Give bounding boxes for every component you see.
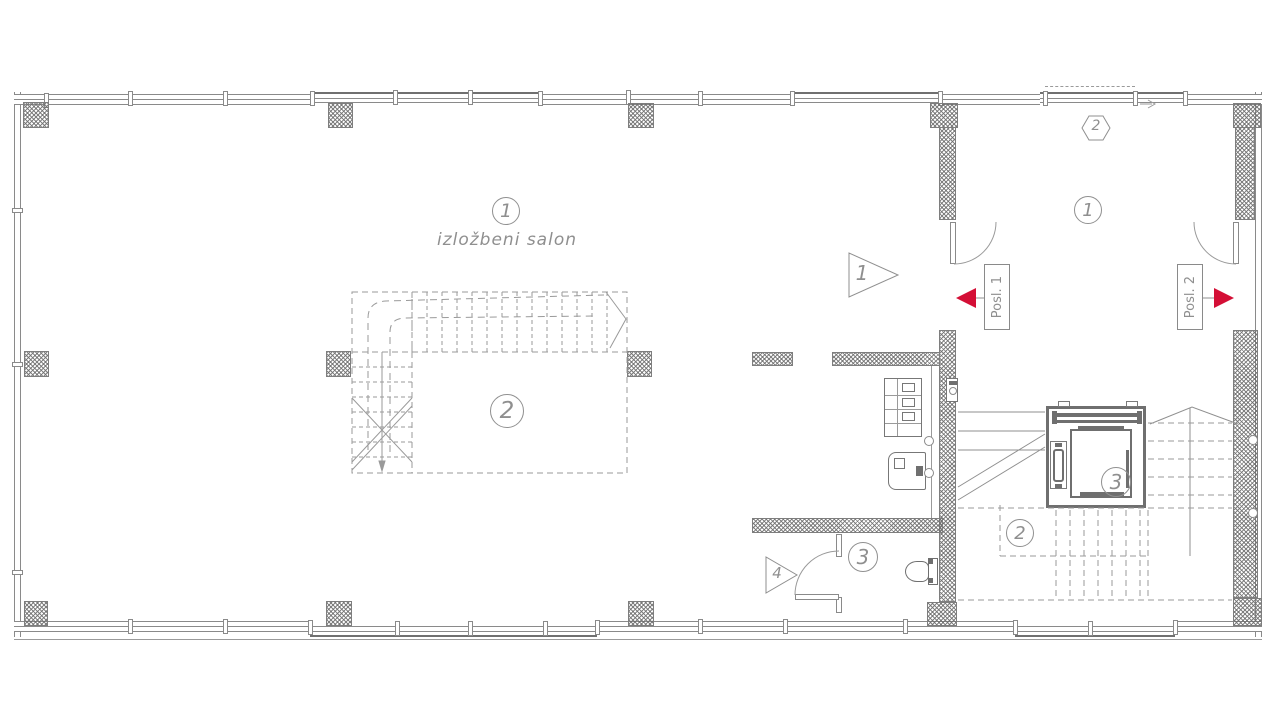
boiler-cap [949, 381, 957, 385]
wall-pass [1248, 508, 1258, 518]
salon-stair-outline [352, 292, 627, 473]
entrance-label-pos1: Posl. 1 [984, 264, 1010, 330]
floor-plan: 1 izložbeni salon 2 3 1 2 3 1 4 2 Posl. … [0, 0, 1280, 720]
salon-stair-walkline [368, 292, 626, 452]
grid-hexagon [1082, 116, 1110, 140]
room-number-stairwell: 2 [1006, 519, 1034, 547]
room-number-text: 3 [857, 545, 870, 569]
boiler-valve [949, 387, 957, 395]
door-arc-pos2 [1194, 222, 1236, 264]
door-arc-pos1 [954, 222, 996, 264]
entrance-label-text: Posl. 1 [990, 276, 1005, 318]
marker-outlines [766, 116, 1110, 593]
entrance-label-pos2: Posl. 2 [1177, 264, 1203, 330]
wall-boiler [946, 378, 958, 402]
room-number-elevator: 3 [1101, 467, 1131, 497]
wall-pass [1248, 435, 1258, 445]
section-triangle-1 [849, 253, 898, 297]
door-arc-wc [795, 551, 839, 595]
entrance-arrow-pos2 [1214, 288, 1234, 308]
plan-linework [0, 0, 1280, 720]
slider-arrow [1140, 100, 1155, 108]
entrance-label-text: Posl. 2 [1183, 276, 1198, 318]
section-triangle-4 [766, 557, 797, 593]
entrance-arrow-pos1 [956, 288, 976, 308]
room-number-text: 3 [1110, 470, 1123, 494]
room-number-wc: 3 [848, 542, 878, 572]
room-number-text: 2 [1014, 523, 1025, 544]
